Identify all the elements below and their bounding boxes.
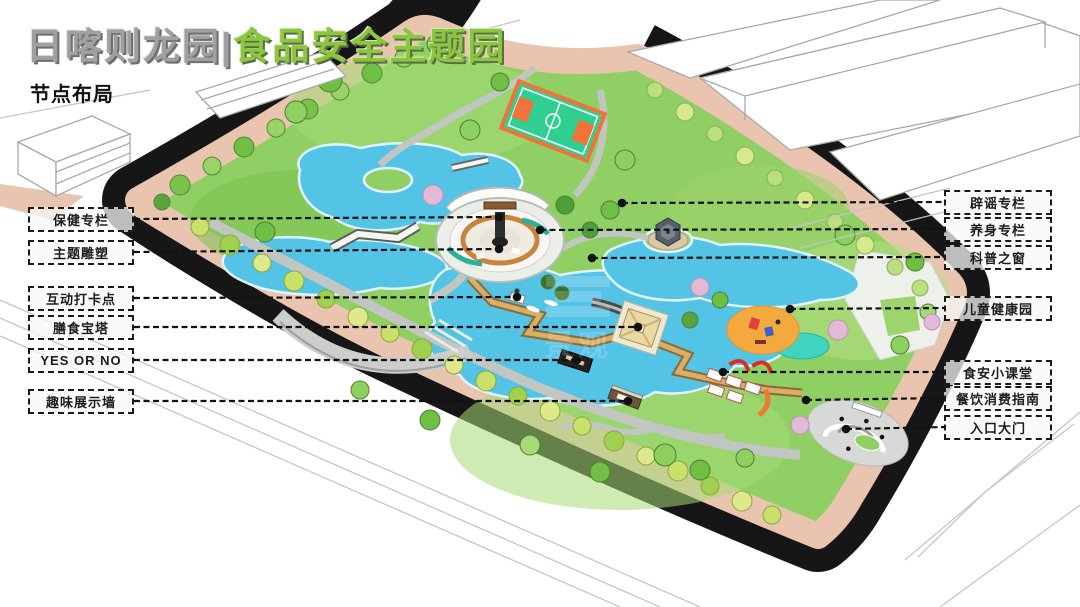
leader-line [134,297,517,298]
leader-dot [573,356,582,365]
pond-island [364,168,412,192]
page-title: 日喀则龙园|食品安全主题园 [26,16,506,70]
callout-text: 保健专栏 [53,210,109,229]
leader-dot [719,368,728,377]
callout-text: 儿童健康园 [963,299,1033,318]
callout-text: 趣味展示墙 [46,392,116,411]
park-plan-rendering [0,0,1080,607]
leader-dot [495,213,504,222]
leader-dot [842,425,851,434]
callout-box: 食安小课堂 [944,360,1052,385]
callout-box: 膳食宝塔 [28,315,134,340]
title-theme-name: 食品安全主题园 [233,26,506,67]
callout-text: 养身专栏 [970,220,1026,239]
leader-dot [624,397,633,406]
callout-text: 膳食宝塔 [53,318,109,337]
callout-text: 入口大门 [970,418,1026,437]
callout-box: 餐饮消费指南 [944,386,1052,411]
leader-dot [802,396,811,405]
callout-box: 趣味展示墙 [28,389,134,414]
page-subtitle: 节点布局 [30,78,114,107]
leader-dot [634,323,643,332]
callout-box: YES OR NO [28,348,134,373]
callout-text: YES OR NO [40,353,121,368]
callout-box: 互动打卡点 [28,286,134,311]
callout-box: 主题雕塑 [28,240,134,265]
callout-text: 餐饮消费指南 [956,389,1040,408]
callout-box: 养身专栏 [944,217,1052,242]
leader-dot [495,245,504,254]
leader-line [540,229,946,230]
callout-text: 辟谣专栏 [970,193,1026,212]
leader-dot [513,293,522,302]
leader-dot [536,226,545,235]
callout-box: 辟谣专栏 [944,190,1052,215]
title-park-name: 日喀则龙园| [26,26,233,67]
leader-dot [618,199,627,208]
callout-text: 互动打卡点 [46,289,116,308]
callout-text: 科普之窗 [970,248,1026,267]
callout-box: 保健专栏 [28,207,134,232]
leader-dot [786,305,795,314]
callout-text: 食安小课堂 [963,363,1033,382]
callout-box: 入口大门 [944,415,1052,440]
callout-box: 科普之窗 [944,245,1052,270]
leader-dot [588,254,597,263]
slide: 景观 日喀则龙园|食品安全主题园 节点布局 保健专栏主题雕塑互动打卡点膳食宝塔Y… [0,0,1080,607]
callout-text: 主题雕塑 [53,243,109,262]
callout-box: 儿童健康园 [944,296,1052,321]
central-plaza [436,195,564,282]
